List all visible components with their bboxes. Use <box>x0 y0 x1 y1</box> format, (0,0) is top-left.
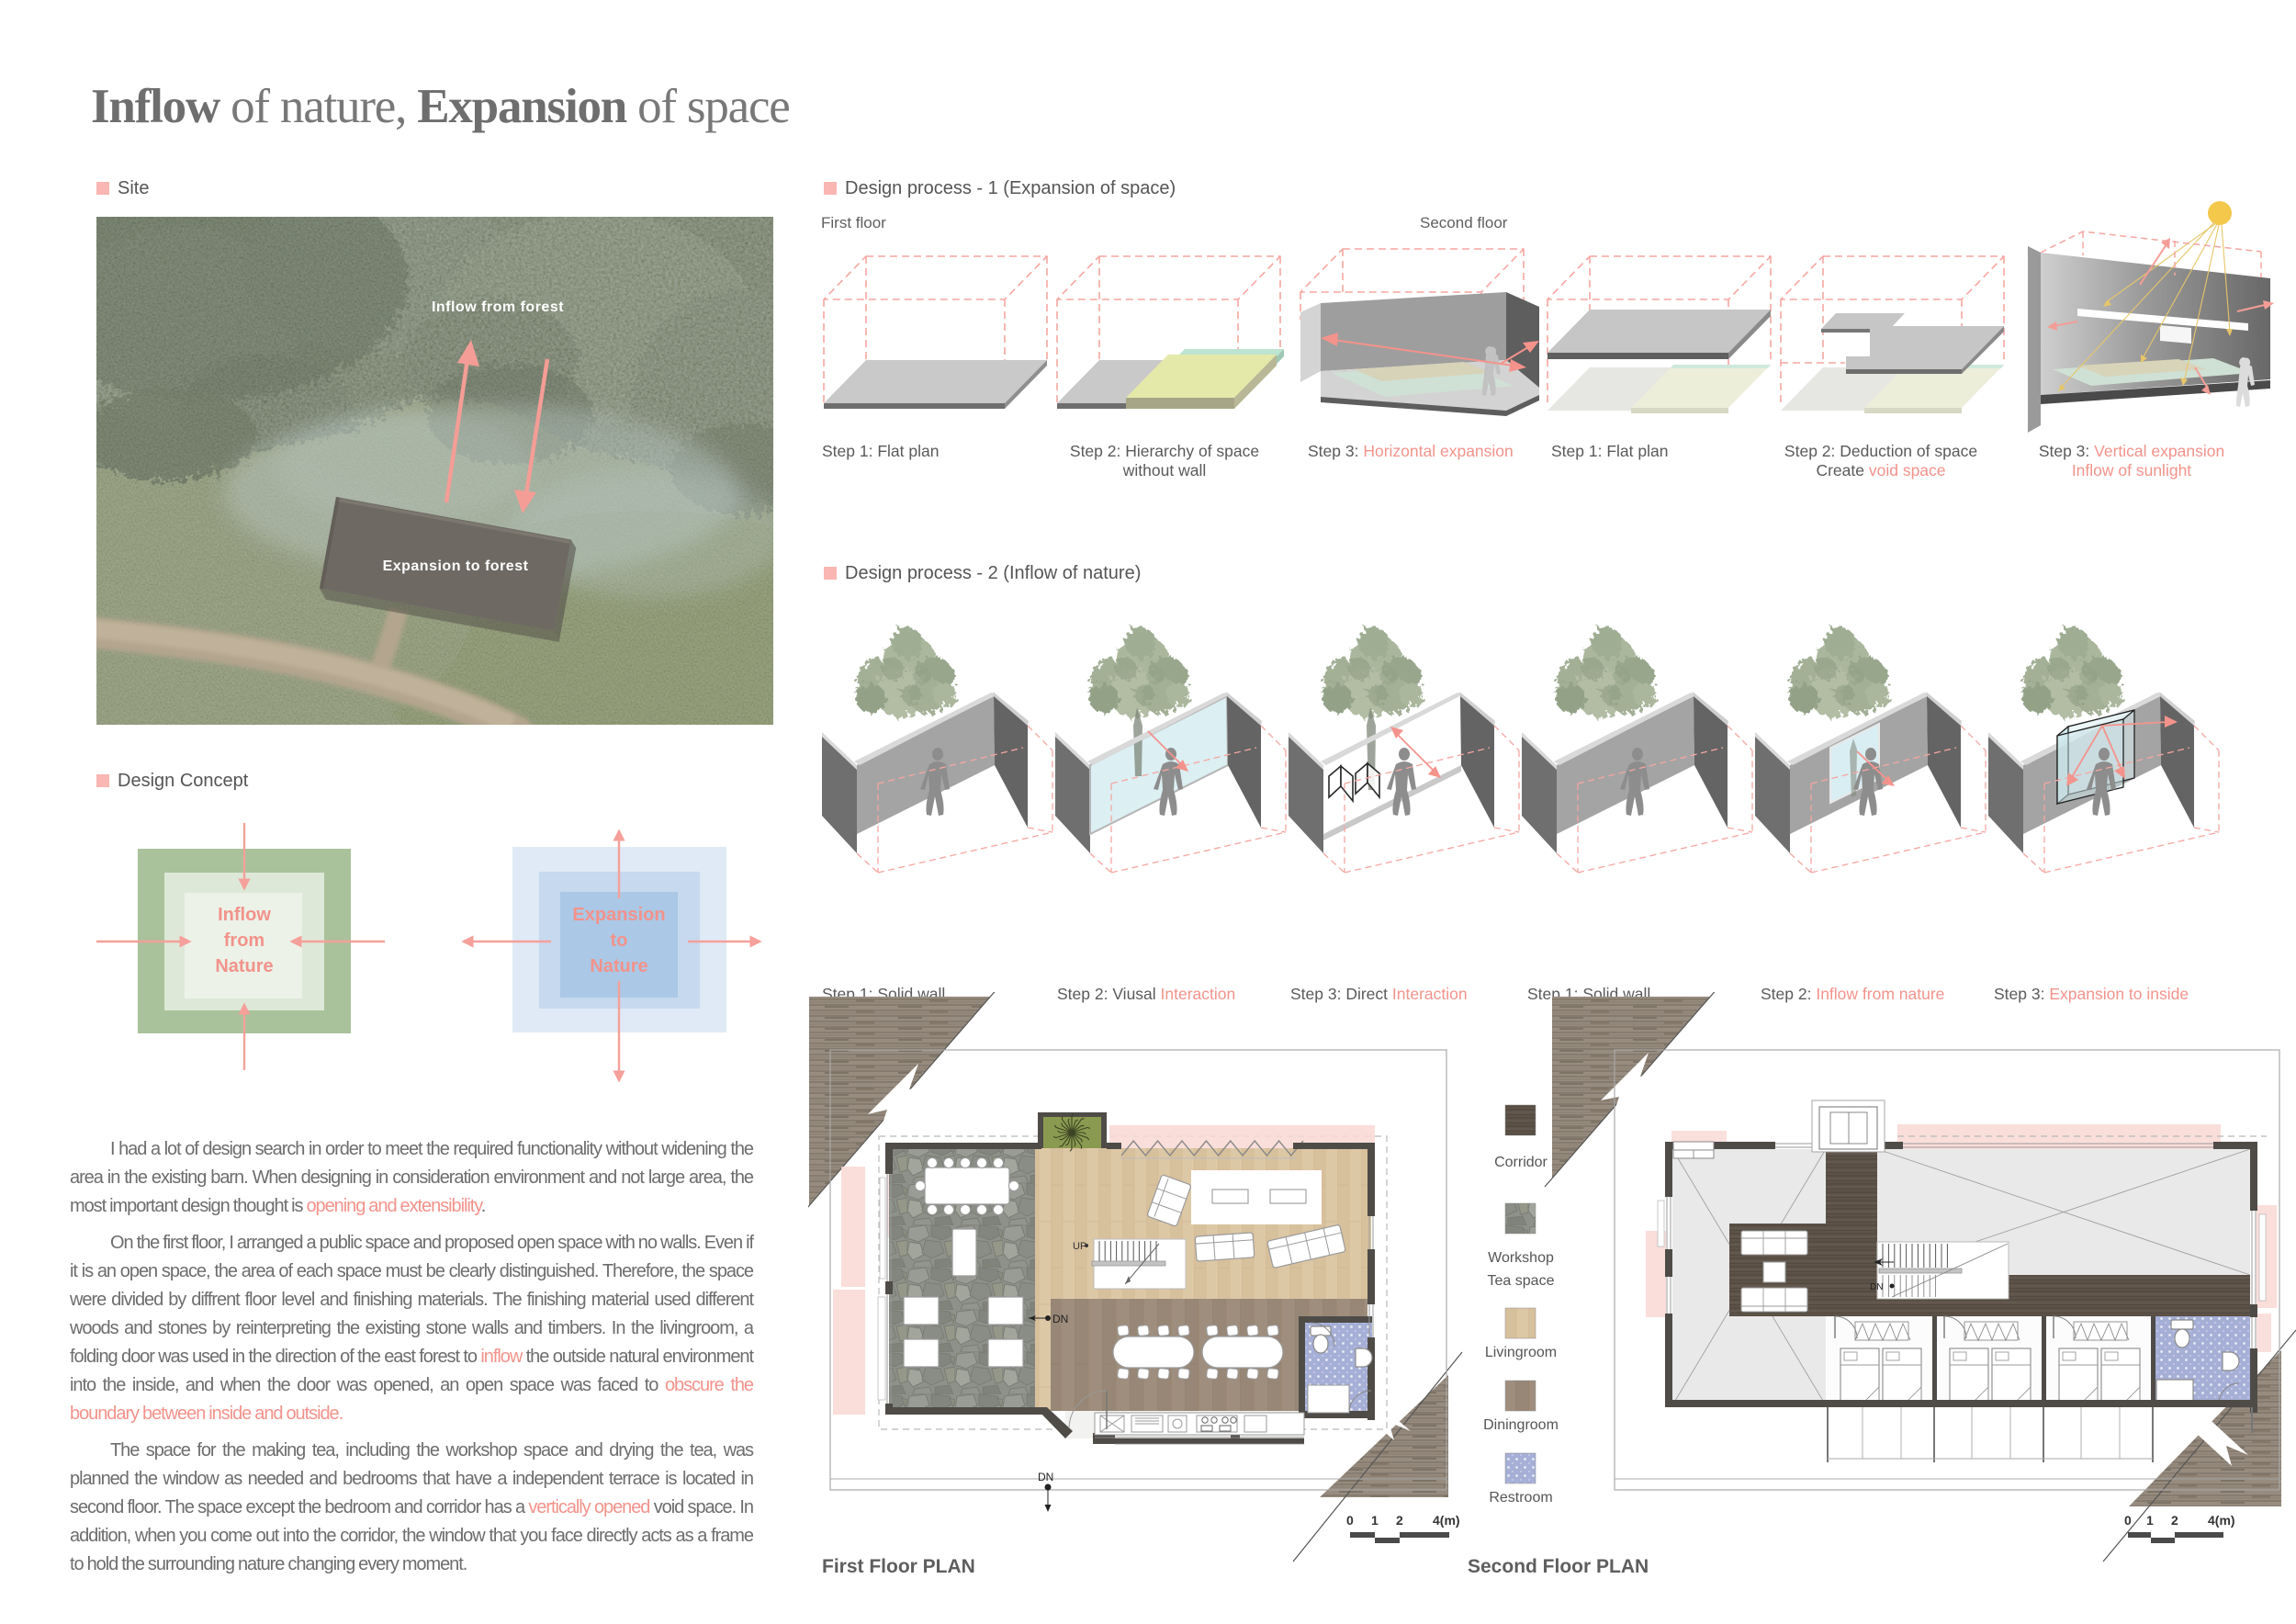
svg-text:Workshop: Workshop <box>1488 1250 1554 1266</box>
svg-text:Inflow: Inflow <box>218 905 271 925</box>
svg-text:Livingroom: Livingroom <box>1485 1345 1557 1360</box>
svg-text:UP: UP <box>1073 1241 1086 1252</box>
svg-text:Inflow from forest: Inflow from forest <box>432 299 564 315</box>
svg-text:Nature: Nature <box>215 956 273 976</box>
svg-text:1: 1 <box>2146 1513 2154 1528</box>
svg-text:DN: DN <box>1870 1282 1883 1292</box>
svg-text:Nature: Nature <box>590 956 647 976</box>
svg-text:1: 1 <box>1371 1513 1379 1528</box>
svg-text:0: 0 <box>2124 1513 2132 1528</box>
svg-text:to: to <box>611 930 628 951</box>
svg-text:Expansion to forest: Expansion to forest <box>383 558 529 574</box>
svg-text:0: 0 <box>1346 1513 1354 1528</box>
svg-text:DN: DN <box>1052 1313 1068 1325</box>
svg-text:Corridor: Corridor <box>1494 1155 1548 1170</box>
svg-text:Diningroom: Diningroom <box>1483 1417 1559 1433</box>
svg-text:2: 2 <box>2171 1513 2178 1528</box>
svg-text:from: from <box>224 930 264 951</box>
svg-text:DN: DN <box>1038 1471 1053 1483</box>
svg-text:Tea space: Tea space <box>1488 1273 1555 1289</box>
svg-text:2: 2 <box>1396 1513 1403 1528</box>
svg-text:4(m): 4(m) <box>2208 1513 2235 1528</box>
svg-text:4(m): 4(m) <box>1433 1513 1460 1528</box>
svg-text:Restroom: Restroom <box>1489 1490 1552 1506</box>
svg-text:Expansion: Expansion <box>572 905 665 925</box>
